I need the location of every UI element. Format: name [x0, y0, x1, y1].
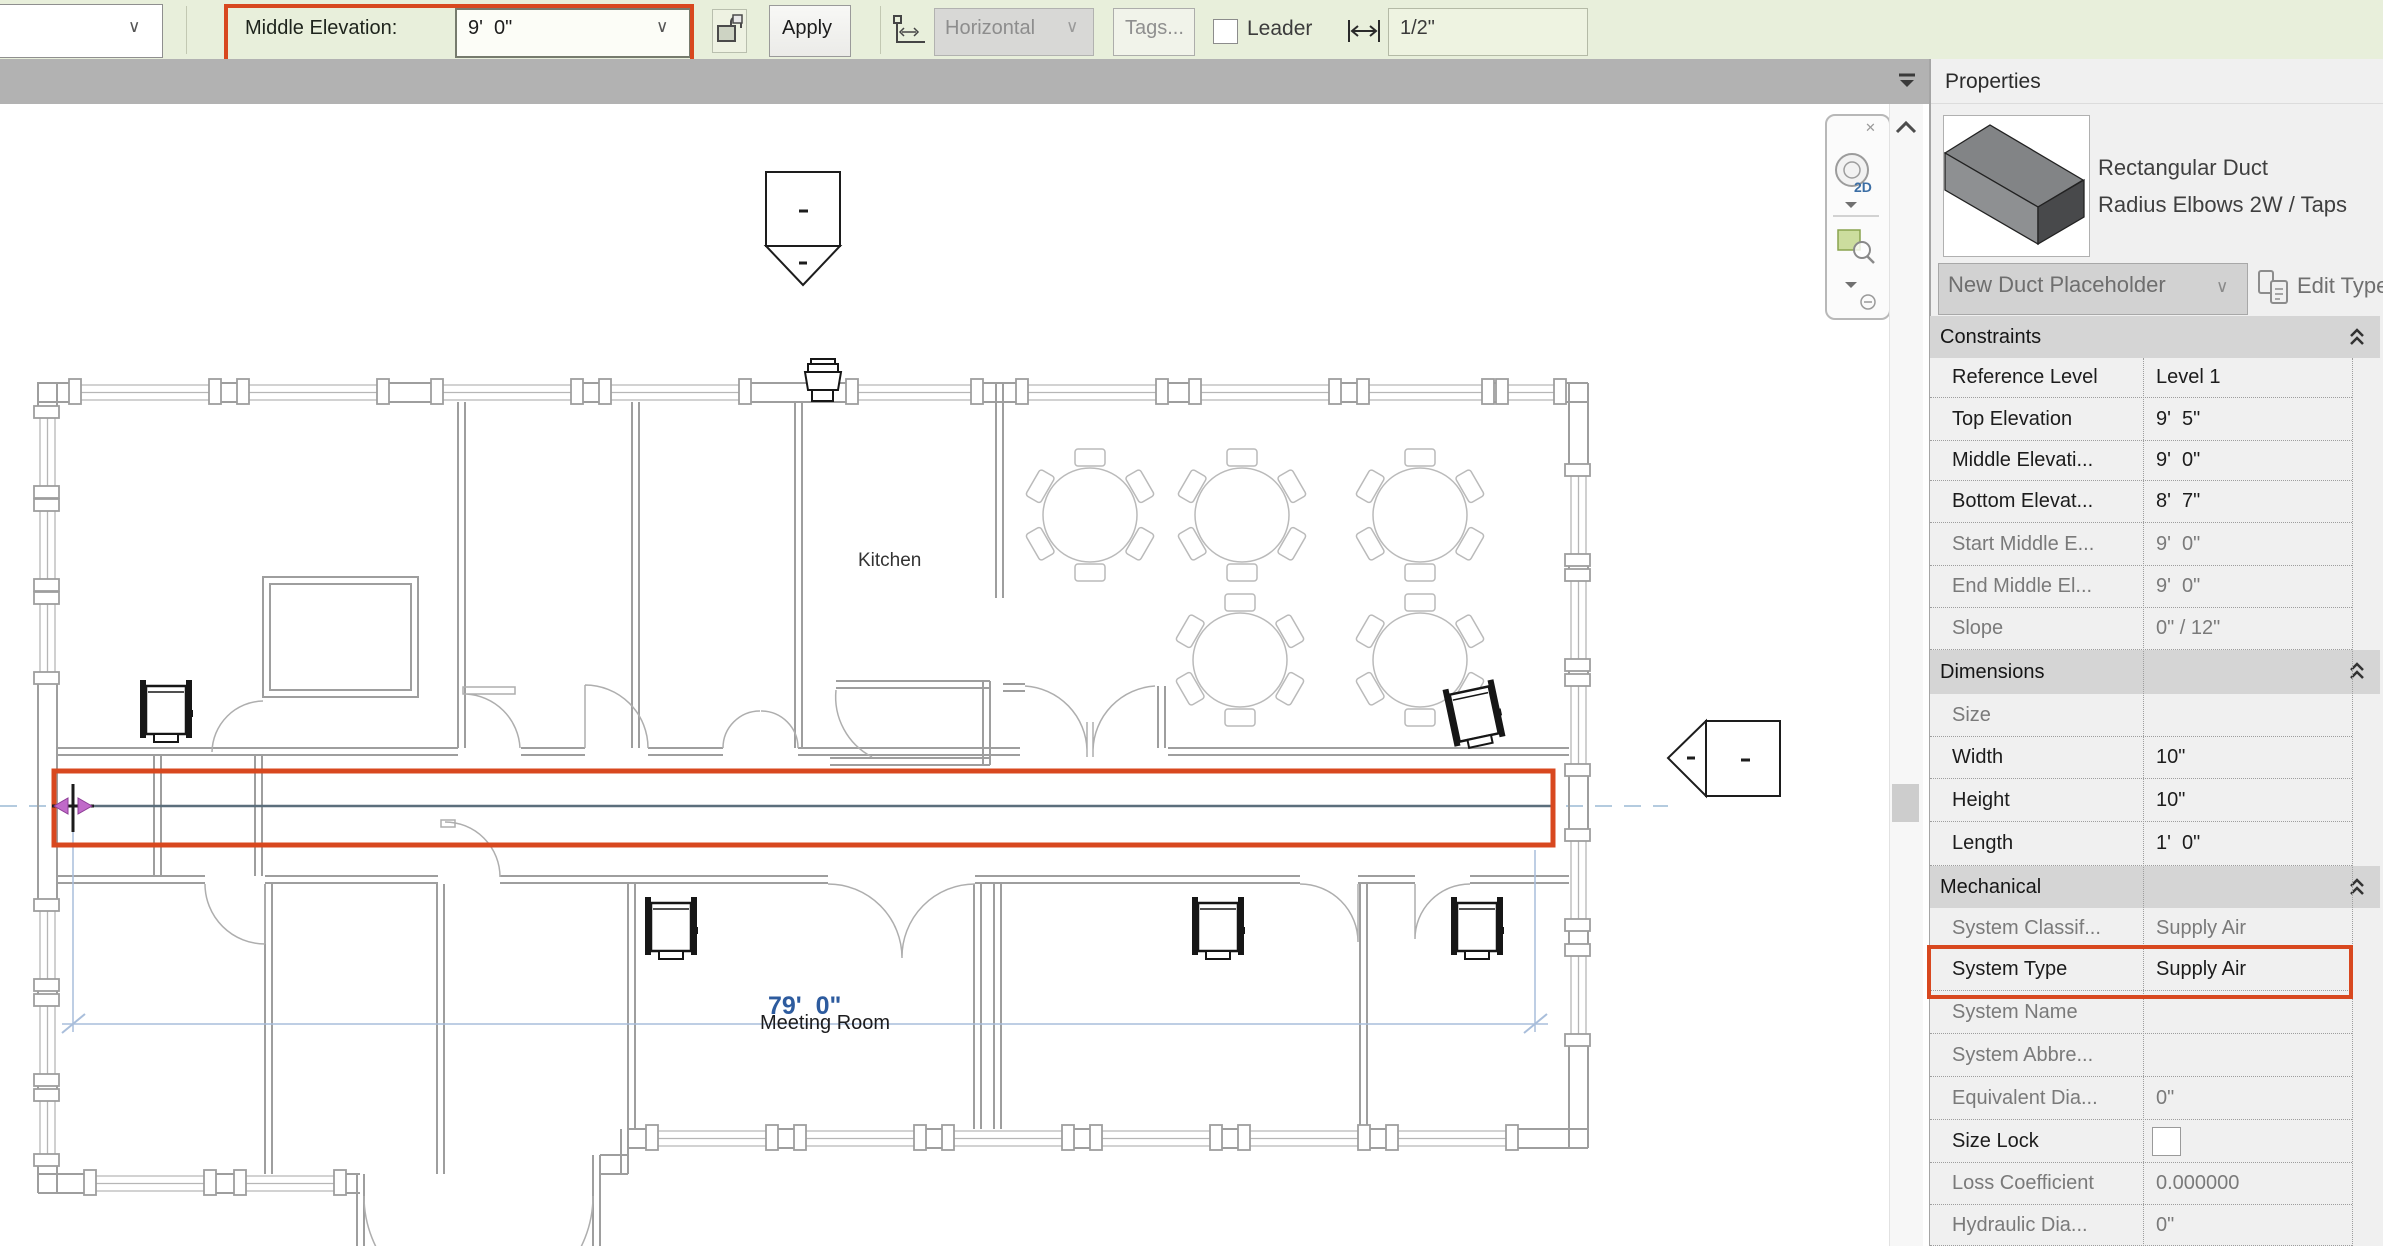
svg-text:Meeting Room: Meeting Room — [760, 1012, 890, 1034]
svg-text:Kitchen: Kitchen — [858, 550, 921, 571]
svg-text:2D: 2D — [1854, 179, 1872, 195]
svg-text:✕: ✕ — [1865, 120, 1876, 135]
